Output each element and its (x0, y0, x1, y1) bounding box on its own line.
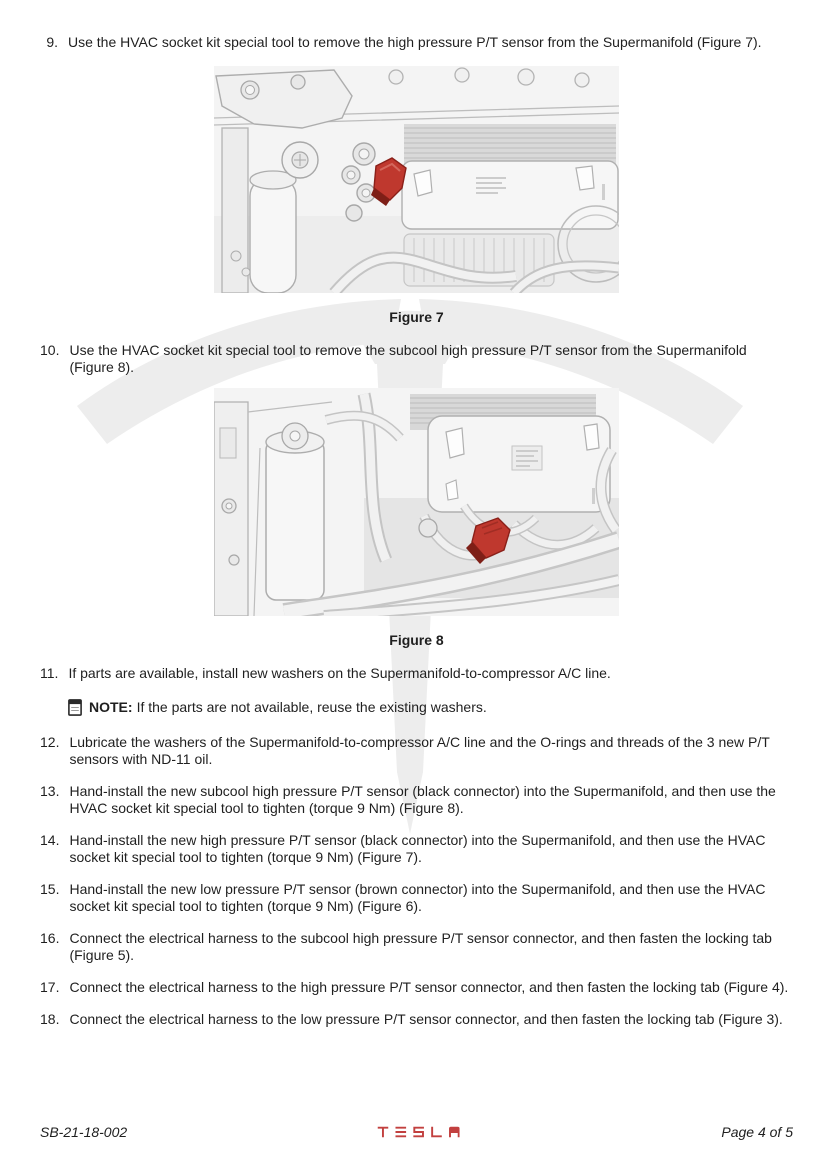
step-number: 11. (40, 665, 68, 682)
document-number: SB-21-18-002 (40, 1124, 127, 1140)
page-indicator: Page 4 of 5 (721, 1124, 793, 1140)
step-text: Use the HVAC socket kit special tool to … (68, 34, 793, 51)
step-item-9: 9. Use the HVAC socket kit special tool … (40, 34, 793, 51)
step-number: 18. (40, 1011, 69, 1028)
note-document-icon (68, 699, 82, 716)
step-item-14: 14. Hand-install the new high pressure P… (40, 832, 793, 866)
step-number: 9. (40, 34, 68, 51)
step-number: 14. (40, 832, 69, 866)
figure-8-caption: Figure 8 (40, 632, 793, 649)
document-page: 9. Use the HVAC socket kit special tool … (0, 0, 820, 1158)
figure-7: Figure 7 (40, 66, 793, 326)
step-item-11: 11. If parts are available, install new … (40, 665, 793, 682)
step-text: Connect the electrical harness to the su… (69, 930, 793, 964)
step-number: 12. (40, 734, 69, 768)
figure-8-image (214, 388, 619, 616)
step-number: 16. (40, 930, 69, 964)
step-text: If parts are available, install new wash… (68, 665, 793, 682)
figure-7-image (214, 66, 619, 293)
step-number: 17. (40, 979, 69, 996)
document-content: 9. Use the HVAC socket kit special tool … (0, 0, 820, 1028)
note-body-text: If the parts are not available, reuse th… (137, 699, 487, 715)
step-text: Hand-install the new low pressure P/T se… (69, 881, 793, 915)
step-text: Hand-install the new high pressure P/T s… (69, 832, 793, 866)
step-text: Hand-install the new subcool high pressu… (69, 783, 793, 817)
step-item-16: 16. Connect the electrical harness to th… (40, 930, 793, 964)
step-text: Lubricate the washers of the Supermanifo… (69, 734, 793, 768)
step-text: Connect the electrical harness to the lo… (69, 1011, 793, 1028)
step-item-12: 12. Lubricate the washers of the Superma… (40, 734, 793, 768)
step-item-15: 15. Hand-install the new low pressure P/… (40, 881, 793, 915)
step-item-13: 13. Hand-install the new subcool high pr… (40, 783, 793, 817)
page-footer: SB-21-18-002 Page 4 of 5 (40, 1122, 793, 1142)
step-number: 10. (40, 342, 69, 376)
step-text: Connect the electrical harness to the hi… (69, 979, 793, 996)
step-number: 15. (40, 881, 69, 915)
note-callout: NOTE:If the parts are not available, reu… (68, 696, 793, 718)
step-text: Use the HVAC socket kit special tool to … (69, 342, 793, 376)
note-label: NOTE: (89, 699, 133, 715)
step-item-18: 18. Connect the electrical harness to th… (40, 1011, 793, 1028)
note-text: NOTE:If the parts are not available, reu… (89, 699, 487, 716)
step-item-10: 10. Use the HVAC socket kit special tool… (40, 342, 793, 376)
step-item-17: 17. Connect the electrical harness to th… (40, 979, 793, 996)
figure-7-caption: Figure 7 (40, 309, 793, 326)
tesla-logo (377, 1127, 459, 1138)
figure-8: Figure 8 (40, 388, 793, 649)
step-number: 13. (40, 783, 69, 817)
